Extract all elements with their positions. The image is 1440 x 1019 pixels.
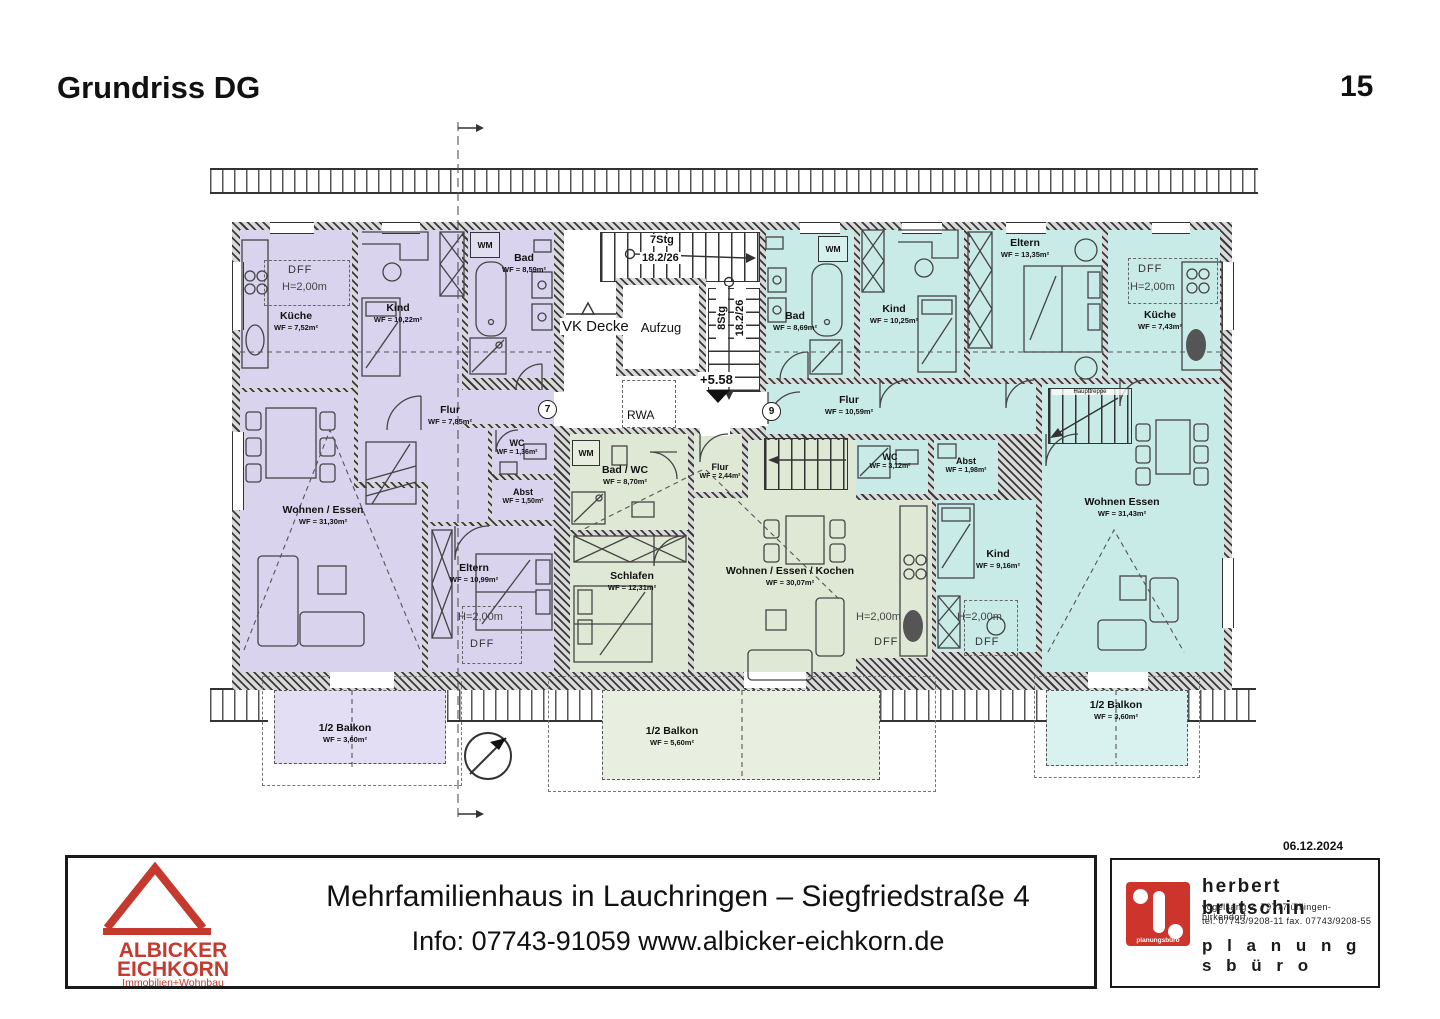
room-kueche-apt9 — [1108, 230, 1220, 378]
level-marker-label: +5.58 — [698, 372, 735, 387]
room-flur-apt9 — [766, 384, 1036, 434]
height-label: H=2,00m — [856, 611, 901, 623]
window — [1222, 262, 1234, 330]
height-label: H=2,00m — [1130, 281, 1175, 293]
agency-roof-logo-icon — [93, 862, 253, 940]
room-schlafen-apt8 — [570, 536, 688, 672]
washing-machine: WM — [572, 440, 600, 466]
window — [232, 432, 244, 510]
room-label-eltern-apt7: ElternWF = 10,99m² — [434, 562, 514, 585]
room-label-wc-apt7: WCWF = 1,36m² — [482, 438, 552, 458]
washing-machine: WM — [818, 236, 848, 262]
dff-label: DFF — [874, 636, 898, 648]
room-flur-apt7 — [428, 428, 488, 522]
project-title: Mehrfamilienhaus in Lauchringen – Siegfr… — [268, 880, 1088, 914]
stairs7-dim-label: 18.2/26 — [640, 252, 681, 264]
roof-strip-top — [210, 168, 1258, 194]
room-label-kueche-apt9: KücheWF = 7,43m² — [1120, 309, 1200, 332]
vk-decke-label: VK Decke — [560, 318, 631, 335]
height-label: H=2,00m — [282, 281, 327, 293]
stairs7-label: 7Stg — [648, 234, 676, 246]
staircase-apt8-internal — [764, 438, 848, 490]
rwa-label: RWA — [627, 408, 654, 422]
window — [902, 222, 942, 234]
plan-date: 06.12.2024 — [1283, 839, 1343, 853]
window — [1006, 222, 1046, 234]
room-label-abst-apt7: AbstWF = 1,50m² — [483, 487, 563, 507]
balcony-door-apt9 — [1088, 672, 1148, 688]
stairs8-label: 8Stg — [716, 286, 728, 350]
room-label-eltern-apt9: ElternWF = 13,35m² — [985, 237, 1065, 260]
room-label-bad-apt7: BadWF = 8,59m² — [484, 252, 564, 275]
room-label-bad-apt9: BadWF = 8,69m² — [755, 310, 835, 333]
balcony-door-apt7 — [330, 672, 394, 688]
room-label-balkon-apt8: 1/2 BalkonWF = 5,60m² — [632, 725, 712, 748]
agency-tagline: Immobilien+Wohnbau — [93, 977, 253, 989]
dff-label: DFF — [975, 636, 999, 648]
room-label-balkon-apt7: 1/2 BalkonWF = 3,60m² — [305, 722, 385, 745]
planner-block: planungsbüro herbert brutschin vogelsang… — [1110, 858, 1380, 988]
room-label-wohnen-apt8: Wohnen / Essen / KochenWF = 30,07m² — [720, 565, 860, 588]
room-label-kind1-apt9: KindWF = 10,25m² — [854, 303, 934, 326]
page-number: 15 — [1340, 70, 1373, 104]
window — [1222, 558, 1234, 628]
window — [232, 262, 244, 330]
staircase-haupttreppe-apt9 — [1048, 388, 1132, 444]
room-label-wohnen-apt9: Wohnen EssenWF = 31,43m² — [1072, 496, 1172, 519]
planner-logo-icon: planungsbüro — [1126, 882, 1190, 946]
haupttreppe-label: Haupttreppe — [1052, 389, 1128, 395]
room-wohnen-essen-apt7 — [240, 392, 354, 672]
height-label: H=2,00m — [957, 611, 1002, 623]
planner-logo-text: planungsbüro — [1126, 937, 1190, 944]
height-label: H=2,00m — [458, 611, 503, 623]
room-label-balkon-apt9: 1/2 BalkonWF = 3,60m² — [1076, 699, 1156, 722]
room-label-wc-apt9: WCWF = 3,12m² — [858, 452, 922, 472]
apartment-number-badge-9: 9 — [762, 402, 781, 421]
dff-label: DFF — [288, 264, 312, 276]
elevator: Aufzug — [623, 285, 699, 369]
apartment-number-badge-7: 7 — [538, 400, 557, 419]
room-label-kind2-apt9: KindWF = 9,16m² — [958, 548, 1038, 571]
room-label-kueche-apt7: KücheWF = 7,52m² — [256, 310, 336, 333]
room-kueche-apt7 — [240, 230, 352, 388]
room-label-abst-apt9: AbstWF = 1,98m² — [934, 456, 998, 476]
balcony-door-apt8 — [744, 672, 806, 688]
room-label-bad-apt8: Bad / WCWF = 8,70m² — [585, 464, 665, 487]
window — [270, 222, 314, 234]
room-label-flur-apt8: FlurWF = 2,44m² — [688, 462, 752, 482]
window — [382, 222, 420, 234]
room-label-flur-apt9: FlurWF = 10,59m² — [809, 394, 889, 417]
planner-phone: tel. 07743/9208-11 fax. 07743/9208-55 — [1202, 916, 1374, 926]
project-info: Info: 07743-91059 www.albicker-eichkorn.… — [268, 926, 1088, 957]
floorplan-page: { "header": { "title": "Grundriss DG", "… — [0, 0, 1440, 1019]
window — [800, 222, 840, 234]
room-label-flur-apt7: FlurWF = 7,85m² — [410, 404, 490, 427]
room-label-wohnen-apt7: Wohnen / EssenWF = 31,30m² — [273, 504, 373, 527]
entry-opening-apt8 — [700, 428, 730, 436]
planner-label: p l a n u n g s b ü r o — [1202, 936, 1378, 976]
window — [1152, 222, 1190, 234]
title-block: ALBICKER EICHKORN Immobilien+Wohnbau Meh… — [65, 855, 1097, 989]
stairs8-dim-label: 18.2/26 — [734, 286, 746, 350]
elevator-label: Aufzug — [641, 320, 681, 335]
room-label-kind-apt7: KindWF = 10,22m² — [358, 302, 438, 325]
roof-strip-bottom-1 — [210, 688, 268, 722]
page-title: Grundriss DG — [57, 70, 260, 106]
room-label-schlafen-apt8: SchlafenWF = 12,31m² — [592, 570, 672, 593]
dff-label: DFF — [1138, 263, 1162, 275]
dff-label: DFF — [470, 638, 494, 650]
room-kochen-nische-apt8 — [856, 500, 932, 658]
